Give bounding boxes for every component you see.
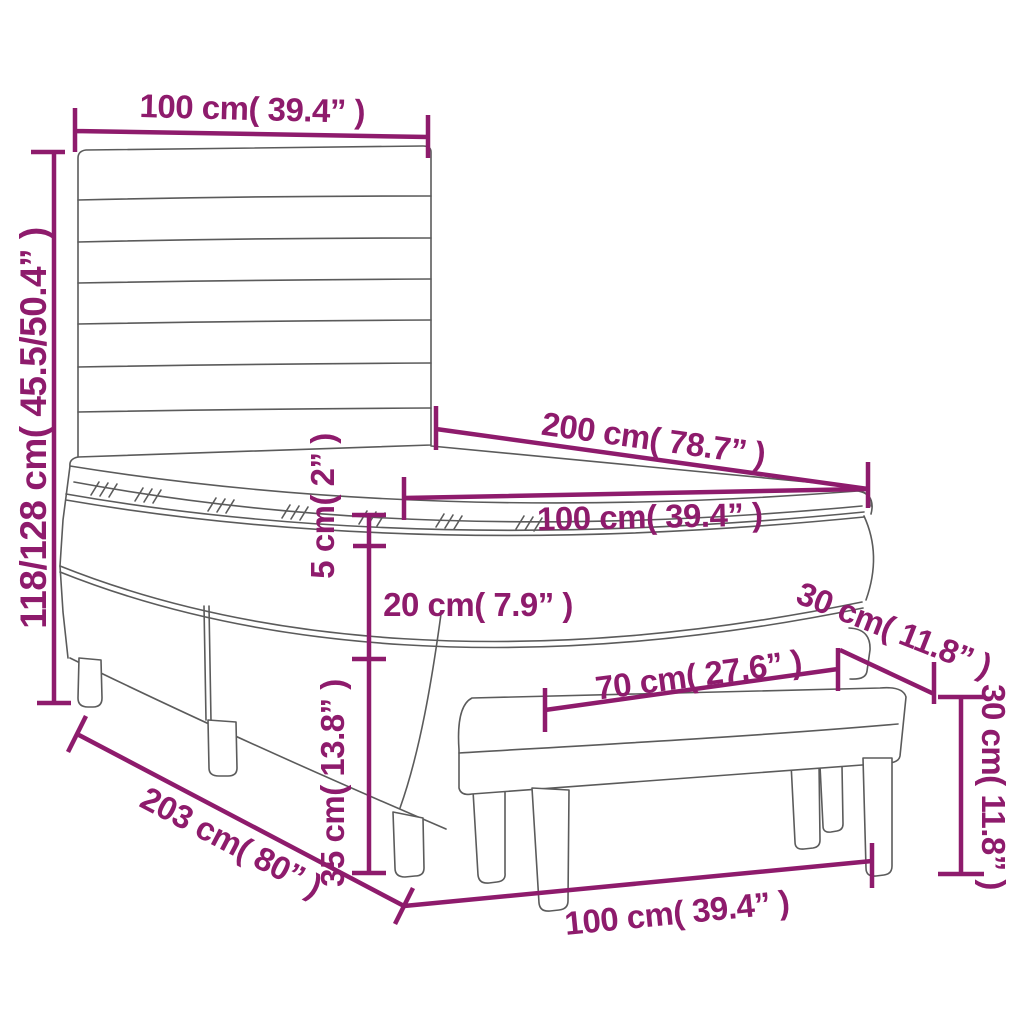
dim-topper-thickness-label: 5 cm( 2” ) xyxy=(304,433,341,578)
bench-back-right-leg-2 xyxy=(820,766,843,832)
bed-dimension-diagram: 100 cm( 39.4” ) 118/128 cm( 45.5/50.4” )… xyxy=(0,0,1024,1024)
dim-base-height: 35 cm( 13.8” ) xyxy=(314,659,386,887)
dim-bench-depth-label: 30 cm( 11.8” ) xyxy=(792,574,997,684)
dim-topper-thickness: 5 cm( 2” ) xyxy=(304,433,386,578)
dim-base-height-label: 35 cm( 13.8” ) xyxy=(314,679,351,887)
dim-mattress-thickness-line xyxy=(352,546,386,659)
dim-bench-height-label: 30 cm( 11.8” ) xyxy=(975,684,1012,890)
bed-leg xyxy=(393,812,424,877)
dim-footprint-length: 203 cm( 80” ) xyxy=(68,716,413,924)
diagram-canvas: 100 cm( 39.4” ) 118/128 cm( 45.5/50.4” )… xyxy=(0,0,1024,1024)
dim-mattress-width: 100 cm( 39.4” ) xyxy=(404,477,868,537)
dim-mattress-thickness-label: 20 cm( 7.9” ) xyxy=(383,586,573,623)
bed-drawing xyxy=(60,146,906,911)
bed-leg xyxy=(78,658,102,707)
dim-bench-height: 30 cm( 11.8” ) xyxy=(938,684,1012,890)
bench-front-right-leg xyxy=(863,758,892,876)
dim-bench-length-line xyxy=(404,843,872,906)
dim-headboard-width-label: 100 cm( 39.4” ) xyxy=(139,87,365,130)
dim-mattress-width-label: 100 cm( 39.4” ) xyxy=(537,496,763,538)
dim-mattress-thickness: 20 cm( 7.9” ) xyxy=(352,546,573,659)
bed-leg xyxy=(208,720,237,776)
bench-back-right-leg xyxy=(791,763,820,849)
box-panel-seam-1 xyxy=(204,606,211,721)
dim-footprint-length-line xyxy=(68,716,413,924)
dim-bench-length-label: 100 cm( 39.4” ) xyxy=(563,883,791,942)
box-panel-seam-2 xyxy=(400,614,441,808)
dim-overall-height-label: 118/128 cm( 45.5/50.4” ) xyxy=(13,227,54,628)
dim-bed-length-label: 200 cm( 78.7” ) xyxy=(539,405,767,473)
mattress-foot-cap xyxy=(864,516,874,600)
dim-overall-height: 118/128 cm( 45.5/50.4” ) xyxy=(13,152,71,703)
dim-footprint-length-label: 203 cm( 80” ) xyxy=(135,779,328,904)
dim-bench-length: 100 cm( 39.4” ) xyxy=(404,843,872,942)
dim-bench-depth: 30 cm( 11.8” ) xyxy=(792,574,997,704)
box-bottom-edge xyxy=(70,658,446,829)
dim-base-height-line xyxy=(352,659,386,873)
